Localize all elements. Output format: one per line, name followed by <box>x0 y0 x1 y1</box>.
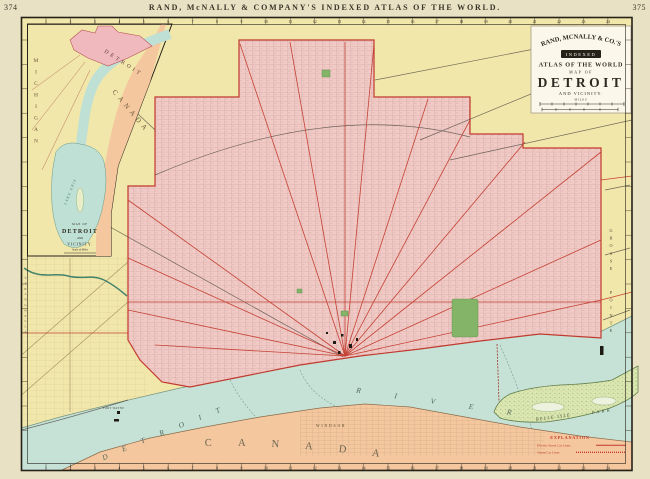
windsor-label: WINDSOR <box>316 424 346 428</box>
cartouche-subtitle: AND VICINITY. <box>559 91 603 96</box>
fort-wayne-label: FORT WAYNE <box>103 407 124 410</box>
cartouche-map-of: MAP OF <box>569 70 593 75</box>
page-number-right: 375 <box>633 3 647 12</box>
grosse-pointe-label-2: POINTE <box>609 290 614 336</box>
atlas-header-title: RAND, McNALLY & COMPANY'S INDEXED ATLAS … <box>0 3 650 12</box>
title-cartouche: RAND, MCNALLY & CO.'S INDEXED ATLAS OF T… <box>531 26 631 113</box>
inset-grosse-ile <box>77 188 84 212</box>
legend-item-electric-label: Electric Street Car Lines <box>537 444 571 448</box>
inset-title-and: AND <box>77 237 83 240</box>
inset-title-map-of: MAP OF <box>72 222 88 226</box>
grosse-pointe-label-1: GROSSE <box>609 228 614 274</box>
legend-title: EXPLANATION <box>550 435 589 440</box>
water-works-icon <box>600 346 604 355</box>
inset-title-detroit: DETROIT <box>62 229 98 235</box>
atlas-page: 374 RAND, McNALLY & COMPANY'S INDEXED AT… <box>0 0 650 479</box>
inset-title-vicinity: VICINITY. <box>67 242 92 247</box>
map-canvas: DETROIT CANADA MICHIGAN LAKE ERIE MAP OF… <box>0 0 650 479</box>
inset-michigan-label: MICHIGAN <box>33 58 39 150</box>
cartouche-atlas: ATLAS OF THE WORLD <box>539 62 623 69</box>
springwells-label: SPRINGWELLS <box>24 276 28 335</box>
cartouche-scale-units: MILES <box>575 98 588 102</box>
cartouche-series: INDEXED <box>566 52 597 57</box>
legend-item-steam-label: Steam Car Lines <box>537 451 560 455</box>
inset-scale-note: Scale of Miles <box>72 249 88 252</box>
cartouche-title: DETROIT <box>538 75 625 90</box>
page-header: 374 RAND, McNALLY & COMPANY'S INDEXED AT… <box>0 0 650 17</box>
